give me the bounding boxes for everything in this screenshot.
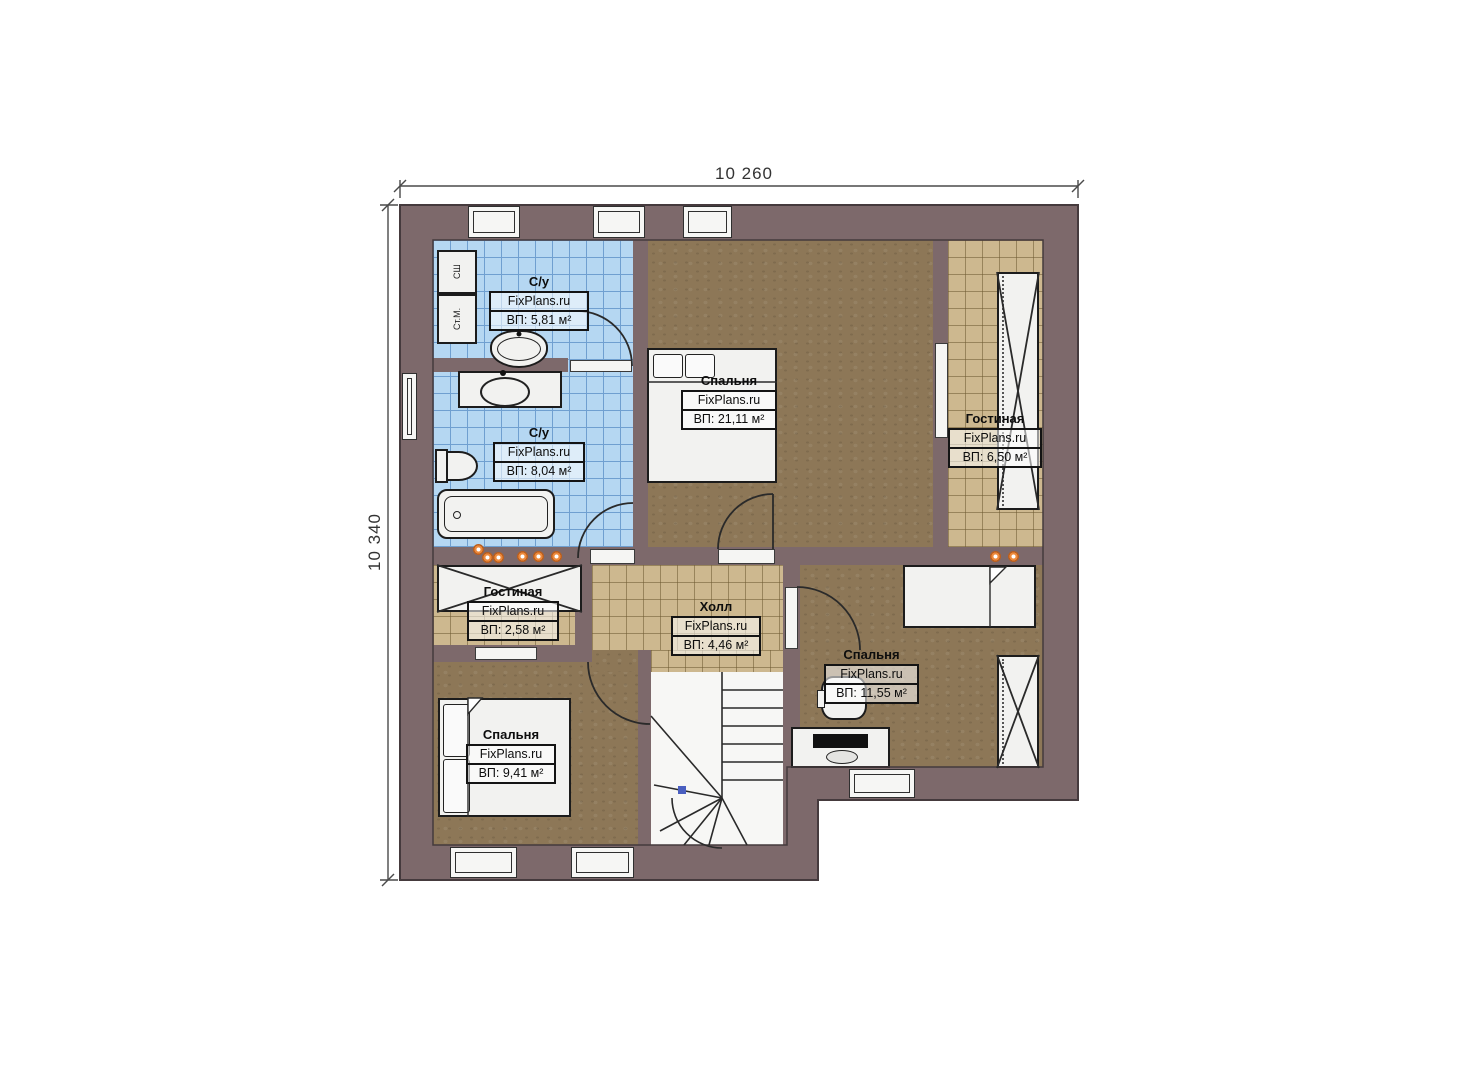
room-area: ВП: 4,46 м²: [673, 635, 759, 654]
room-info-box: FixPlans.ru ВП: 11,55 м²: [824, 664, 919, 704]
room-label-bath-top: С/у FixPlans.ru ВП: 5,81 м²: [489, 275, 589, 331]
sink-bowl: [497, 337, 541, 361]
room-name: Спальня: [466, 728, 556, 742]
room-area: ВП: 5,81 м²: [491, 310, 587, 329]
watermark-text: FixPlans.ru: [491, 293, 587, 310]
pillow: [653, 354, 683, 378]
ceiling-light: [482, 552, 493, 563]
window-pane: [455, 852, 512, 873]
room-label-living-right: Гостиная FixPlans.ru ВП: 6,50 м²: [948, 412, 1042, 468]
watermark-text: FixPlans.ru: [950, 430, 1040, 447]
watermark-text: FixPlans.ru: [468, 746, 554, 763]
ceiling-light: [1008, 551, 1019, 562]
window-pane: [576, 852, 629, 873]
watermark-text: FixPlans.ru: [826, 666, 917, 683]
doorway-hall-bedroom-master: [718, 549, 775, 564]
keyboard-tray: [826, 750, 858, 764]
dimension-tick: [382, 199, 394, 211]
ceiling-light: [990, 551, 1001, 562]
room-label-hall: Холл FixPlans.ru ВП: 4,46 м²: [671, 600, 761, 656]
wardrobe-rail: [1002, 659, 1004, 764]
watermark-text: FixPlans.ru: [495, 444, 583, 461]
wardrobe-rail: [1002, 276, 1004, 506]
stairwell: [651, 672, 783, 845]
door-leaf-bath-top: [570, 360, 632, 372]
room-area: ВП: 6,50 м²: [950, 447, 1040, 466]
room-area: ВП: 9,41 м²: [468, 763, 554, 782]
room-info-box: FixPlans.ru ВП: 9,41 м²: [466, 744, 556, 784]
wall-bottom-right: [787, 767, 1078, 800]
room-label-bedroom-right: Спальня FixPlans.ru ВП: 11,55 м²: [824, 648, 919, 704]
room-info-box: FixPlans.ru ВП: 21,11 м²: [681, 390, 777, 430]
room-label-bath-main: С/у FixPlans.ru ВП: 8,04 м²: [493, 426, 585, 482]
dimension-tick: [394, 180, 406, 192]
faucet: [500, 370, 506, 376]
room-label-bedroom-master: Спальня FixPlans.ru ВП: 21,11 м²: [681, 374, 777, 430]
room-info-box: FixPlans.ru ВП: 4,46 м²: [671, 616, 761, 656]
window: [849, 769, 915, 798]
room-area: ВП: 11,55 м²: [826, 683, 917, 702]
floor-plan-canvas: СШ Ст.М.: [0, 0, 1473, 1080]
window-pane: [598, 211, 640, 233]
room-name: Гостиная: [948, 412, 1042, 426]
wall-bath-bedroom: [633, 240, 648, 547]
ceiling-light: [551, 551, 562, 562]
room-info-box: FixPlans.ru ВП: 8,04 м²: [493, 442, 585, 482]
wardrobe: [997, 272, 1039, 510]
window: [593, 206, 645, 238]
wall-stair-left: [638, 650, 651, 845]
room-info-box: FixPlans.ru ВП: 5,81 м²: [489, 291, 589, 331]
room-name: Спальня: [824, 648, 919, 662]
watermark-text: FixPlans.ru: [469, 603, 557, 620]
window: [683, 206, 732, 238]
ceiling-light: [493, 552, 504, 563]
window: [402, 373, 417, 440]
wall-right: [1043, 240, 1078, 800]
room-info-box: FixPlans.ru ВП: 6,50 м²: [948, 428, 1042, 468]
dimension-tick: [382, 874, 394, 886]
door-leaf-bedroom-right: [785, 587, 798, 649]
floor-bedroom-left-doorway: [592, 650, 638, 672]
dimension-top-label: 10 260: [699, 164, 789, 184]
room-name: Гостиная: [467, 585, 559, 599]
room-info-box: FixPlans.ru ВП: 2,58 м²: [467, 601, 559, 641]
room-name: С/у: [489, 275, 589, 289]
room-area: ВП: 2,58 м²: [469, 620, 557, 639]
computer-monitor: [813, 734, 868, 748]
watermark-text: FixPlans.ru: [673, 618, 759, 635]
window-pane: [407, 378, 412, 435]
drying-cabinet-label: СШ: [439, 252, 475, 292]
ceiling-light: [533, 551, 544, 562]
room-name: С/у: [493, 426, 585, 440]
stair-marker: [678, 786, 686, 794]
room-area: ВП: 21,11 м²: [683, 409, 775, 428]
window-pane: [688, 211, 727, 233]
doorway-living-left: [475, 647, 537, 660]
room-label-bedroom-left: Спальня FixPlans.ru ВП: 9,41 м²: [466, 728, 556, 784]
desk: [791, 727, 890, 768]
dimension-left-label: 10 340: [365, 497, 385, 587]
washing-machine: Ст.М.: [437, 294, 477, 344]
room-name: Спальня: [681, 374, 777, 388]
sink-counter: [458, 371, 562, 408]
niche-opening: [935, 343, 948, 438]
doorway-hall-bath: [590, 549, 635, 564]
room-name: Холл: [671, 600, 761, 614]
window: [468, 206, 520, 238]
sink-bowl: [480, 377, 530, 407]
drain: [453, 511, 461, 519]
window: [571, 847, 634, 878]
window: [450, 847, 517, 878]
watermark-text: FixPlans.ru: [683, 392, 775, 409]
room-area: ВП: 8,04 м²: [495, 461, 583, 480]
drying-cabinet: СШ: [437, 250, 477, 294]
dimension-tick: [1072, 180, 1084, 192]
pedestal-sink: [490, 330, 548, 368]
window-pane: [854, 774, 910, 793]
ceiling-light: [517, 551, 528, 562]
wardrobe: [997, 655, 1039, 768]
single-bed: [903, 565, 1036, 628]
washing-machine-label: Ст.М.: [439, 296, 475, 342]
window-pane: [473, 211, 515, 233]
wall-left: [400, 240, 433, 880]
room-label-living-left: Гостиная FixPlans.ru ВП: 2,58 м²: [467, 585, 559, 641]
bathtub: [437, 489, 555, 539]
